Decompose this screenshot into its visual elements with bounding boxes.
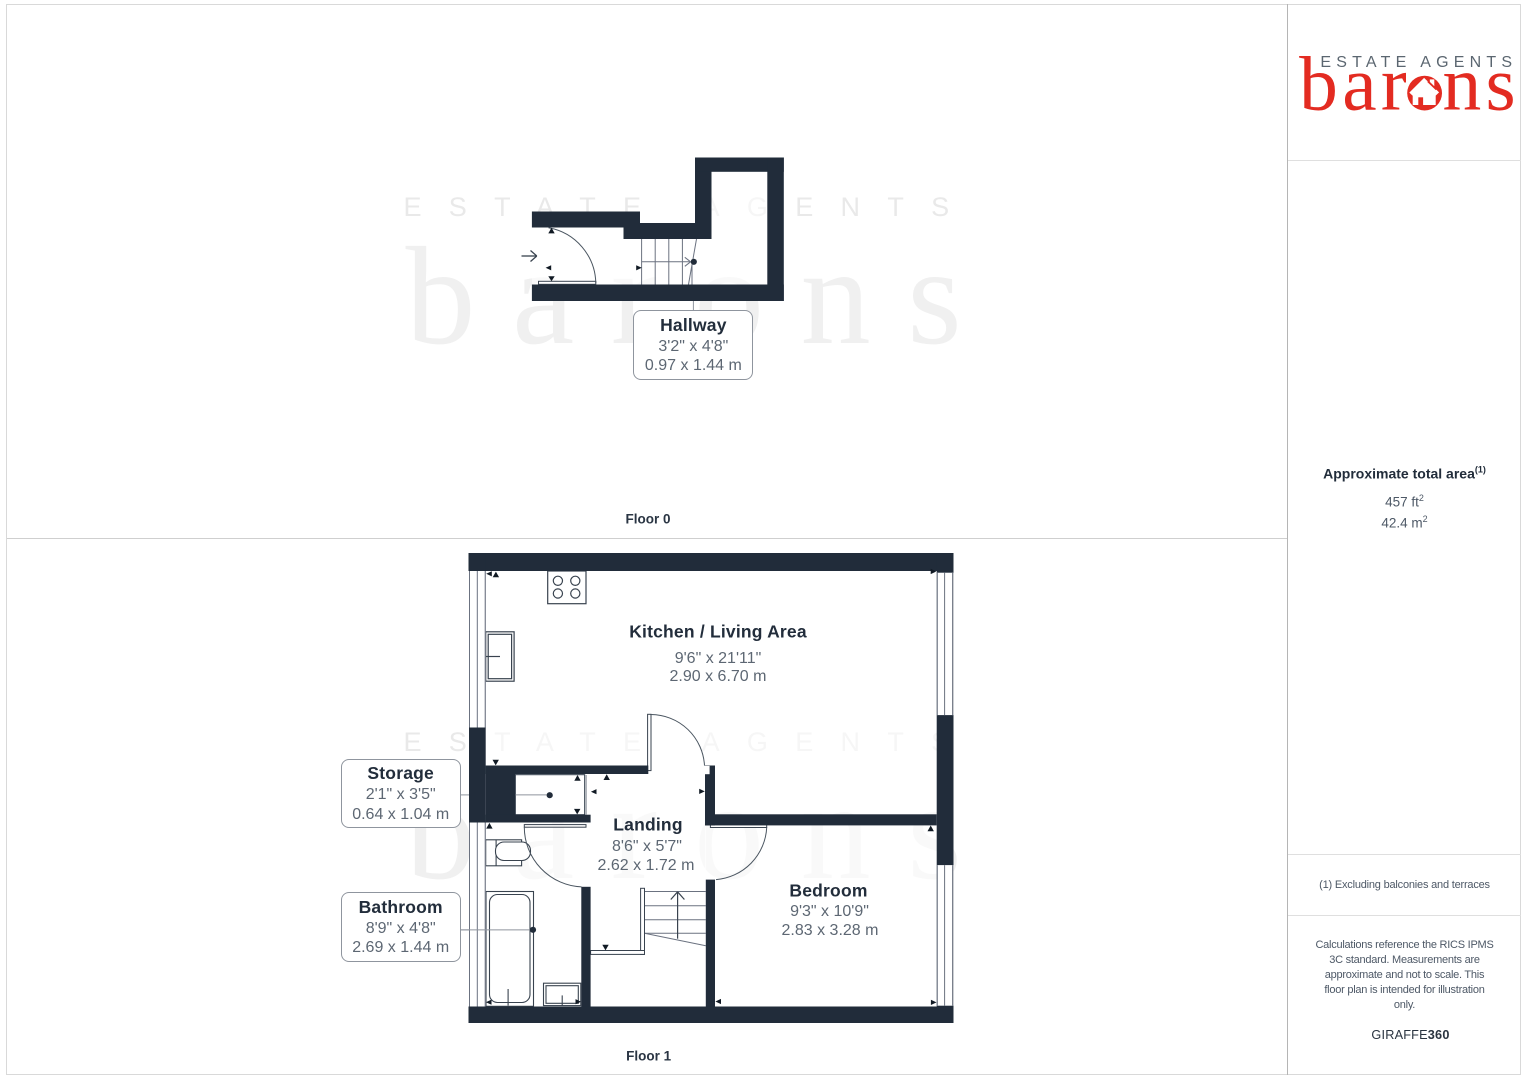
svg-text:ns: ns [1443,41,1521,121]
svg-text:bar: bar [1299,41,1411,121]
